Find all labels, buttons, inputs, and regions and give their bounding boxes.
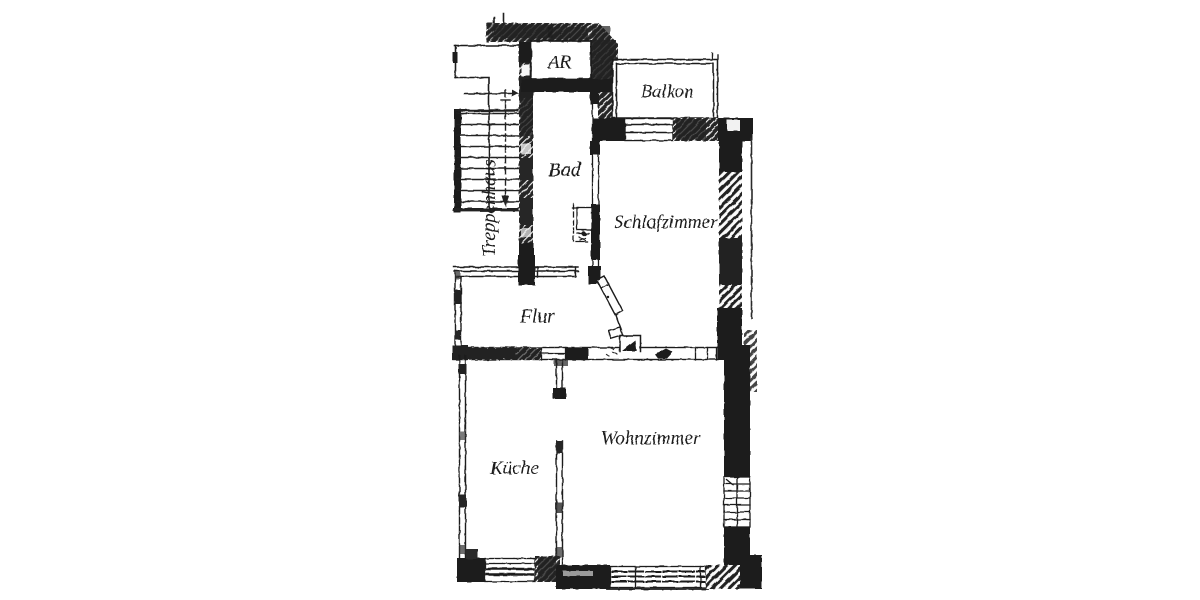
svg-text:Flur: Flur	[519, 307, 555, 328]
svg-text:Schlafzimmer: Schlafzimmer	[614, 212, 718, 233]
svg-text:Küche: Küche	[489, 458, 540, 479]
svg-text:Treppenhaus: Treppenhaus	[479, 160, 500, 257]
svg-text:Bad: Bad	[548, 159, 582, 181]
svg-text:Balkon: Balkon	[641, 83, 693, 103]
svg-text:Wohnzimmer: Wohnzimmer	[601, 428, 701, 449]
svg-text:AR: AR	[546, 52, 572, 73]
